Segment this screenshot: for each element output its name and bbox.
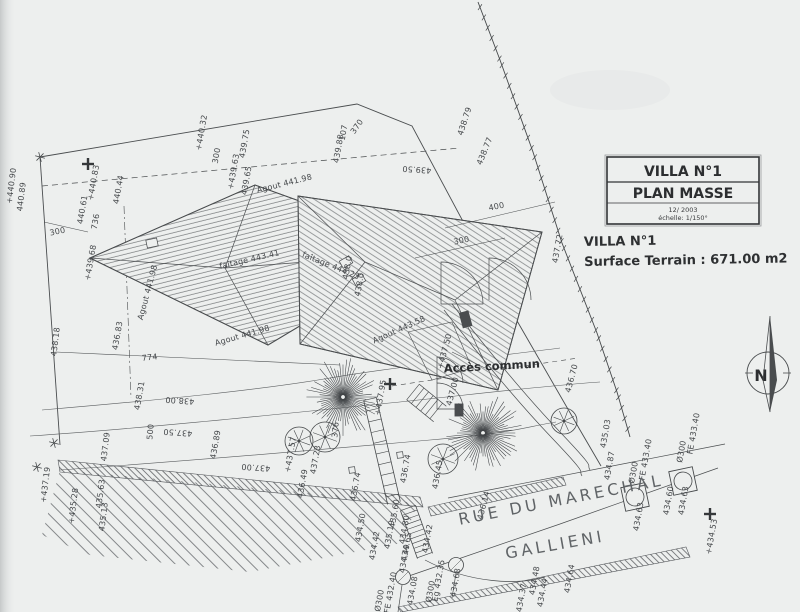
scan-edge-shadow: [0, 0, 16, 612]
title-block-villa: VILLA N°1: [644, 164, 722, 180]
scan-blotch: [550, 70, 670, 110]
compass-north-label: N: [754, 366, 767, 385]
scanned-site-plan-page: +440.90440.89+440.83440.61736300440.44+4…: [0, 0, 800, 612]
gate-post: [455, 404, 463, 416]
elevation-label: 500: [145, 423, 155, 440]
site-plan-drawing: +440.90440.89+440.83440.61736300440.44+4…: [0, 0, 800, 612]
villa-info-title: VILLA N°1: [584, 234, 657, 250]
elevation-label: 774: [141, 352, 158, 363]
title-block: VILLA N°1 PLAN MASSE 12/ 2003 échelle: 1…: [605, 155, 761, 226]
title-block-plan-masse: PLAN MASSE: [633, 186, 733, 202]
elevation-label: 376: [330, 421, 340, 438]
title-block-date: 12/ 2003: [668, 206, 697, 214]
title-block-scale: échelle: 1/150°: [658, 214, 708, 222]
